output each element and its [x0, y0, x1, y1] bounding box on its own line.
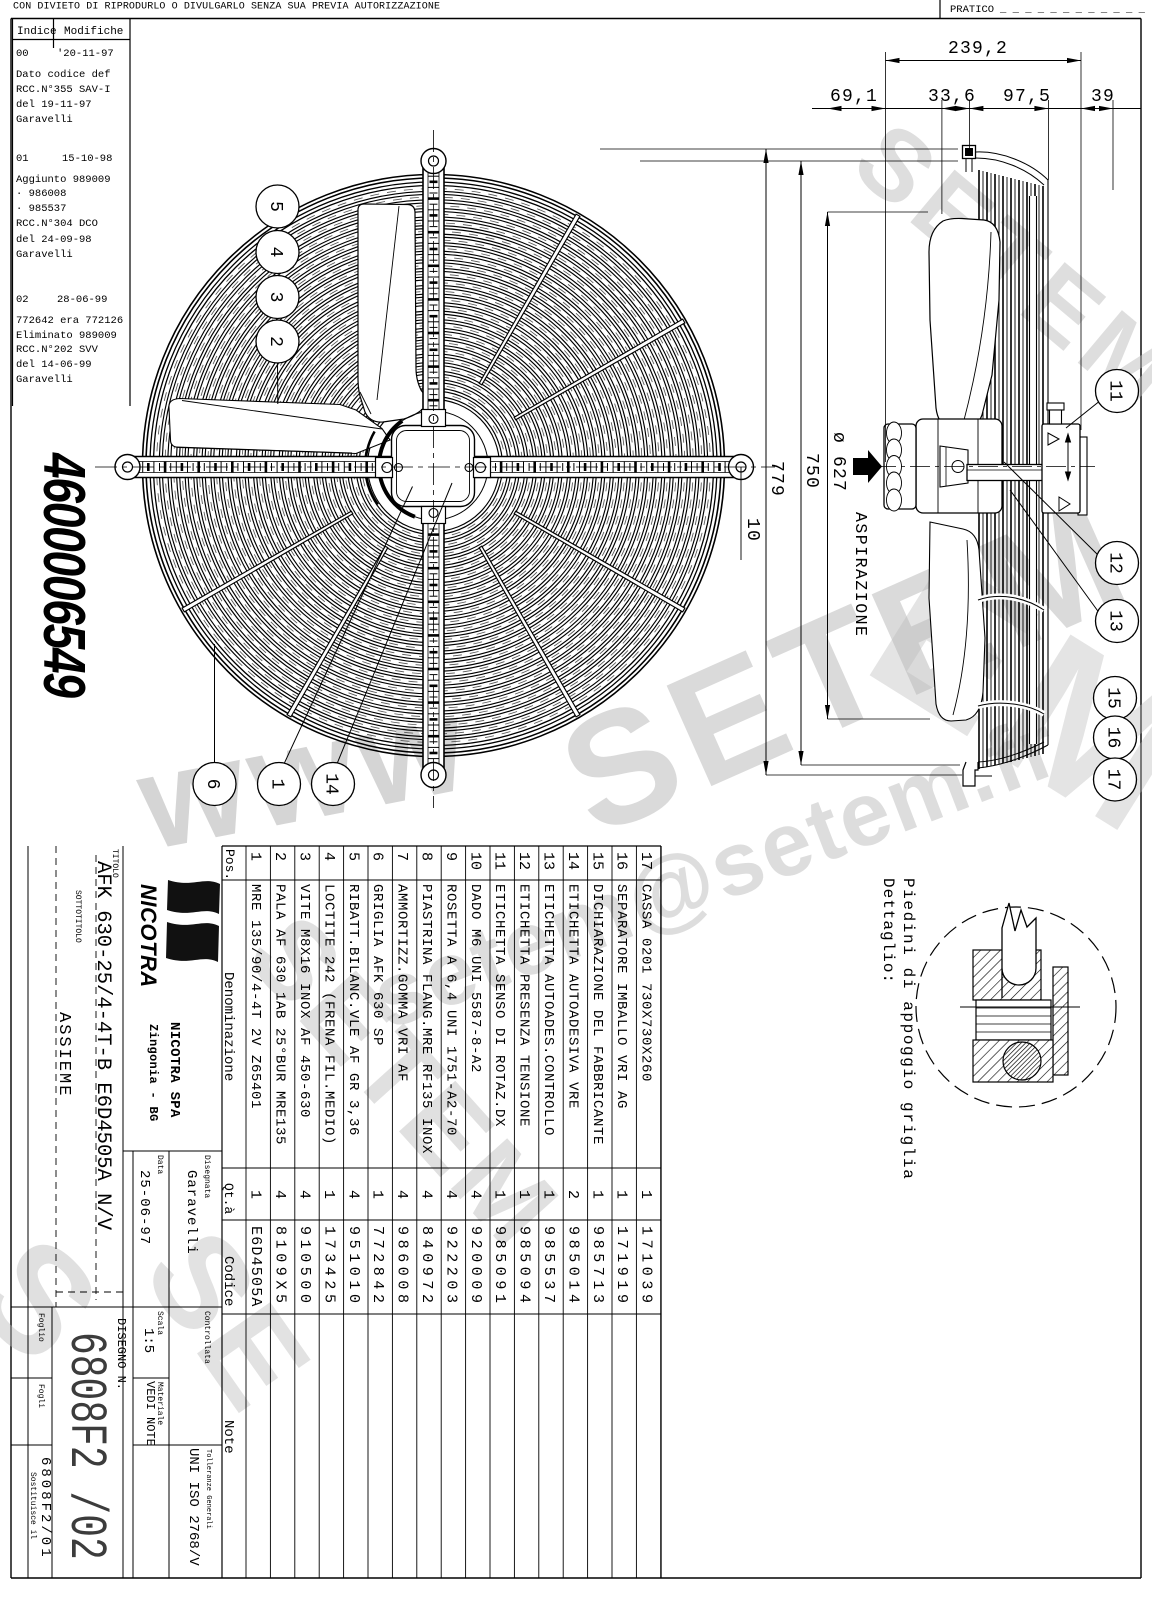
svg-text:Aggiunto 989009: Aggiunto 989009	[16, 174, 111, 186]
svg-text:DICHIARAZIONE DEL FABBRICANTE: DICHIARAZIONE DEL FABBRICANTE	[589, 884, 605, 1145]
svg-text:Garavelli: Garavelli	[16, 249, 73, 261]
svg-text:14: 14	[564, 852, 581, 870]
svg-text:1: 1	[540, 1190, 557, 1199]
svg-text:13: 13	[540, 852, 557, 870]
svg-text:33,6: 33,6	[928, 87, 976, 107]
svg-text:00: 00	[16, 48, 29, 60]
svg-text:4: 4	[265, 247, 285, 258]
svg-text:4: 4	[466, 1190, 483, 1199]
svg-text:Piedini di appoggio griglia: Piedini di appoggio griglia	[899, 878, 917, 1180]
svg-text:15: 15	[1103, 687, 1123, 709]
svg-text:985014: 985014	[564, 1226, 581, 1308]
svg-text:del 19-11-97: del 19-11-97	[16, 99, 92, 111]
svg-text:ASSIEME: ASSIEME	[54, 1012, 73, 1097]
svg-text:E6D4505A: E6D4505A	[247, 1226, 264, 1308]
svg-text:779: 779	[766, 461, 786, 497]
svg-text:772642 era 772126: 772642 era 772126	[16, 315, 123, 327]
svg-text:VEDI NOTE: VEDI NOTE	[143, 1381, 157, 1446]
svg-text:1: 1	[369, 1190, 386, 1199]
svg-text:AFK 630-25/4-4T-B E6D4505A N/V: AFK 630-25/4-4T-B E6D4505A N/V	[91, 861, 114, 1231]
svg-text:69,1: 69,1	[830, 87, 878, 107]
svg-text:Garavelli: Garavelli	[183, 1170, 199, 1255]
svg-text:Eliminato 989009: Eliminato 989009	[16, 330, 117, 342]
svg-text:6808F2/01: 6808F2/01	[37, 1457, 53, 1560]
svg-text:Zingonia - BG: Zingonia - BG	[146, 1024, 160, 1122]
svg-text:7: 7	[393, 852, 410, 861]
svg-text:15-10-98: 15-10-98	[62, 153, 112, 165]
svg-text:RIBATT.BILANC.VLE AF GR 3,36: RIBATT.BILANC.VLE AF GR 3,36	[345, 884, 361, 1136]
svg-text:CON DIVIETO DI RIPRODURLO O DI: CON DIVIETO DI RIPRODURLO O DIVULGARLO S…	[13, 2, 440, 13]
svg-text:del 14-06-99: del 14-06-99	[16, 359, 92, 371]
svg-text:Qt.à: Qt.à	[221, 1183, 236, 1214]
svg-text:MRE 135/90/4-4T 2V Z65401: MRE 135/90/4-4T 2V Z65401	[247, 884, 263, 1109]
svg-text:3: 3	[265, 292, 285, 303]
svg-text:1: 1	[247, 1190, 264, 1199]
svg-text:8: 8	[418, 852, 435, 861]
svg-text:10: 10	[742, 518, 762, 542]
svg-text:PIASTRINA FLANG.MRE RF135 INOX: PIASTRINA FLANG.MRE RF135 INOX	[418, 884, 434, 1154]
svg-text:4: 4	[296, 1190, 313, 1199]
svg-text:CASSA 0201 730X730X260: CASSA 0201 730X730X260	[638, 884, 654, 1082]
svg-text:Tolleranze Generali: Tolleranze Generali	[204, 1449, 212, 1529]
svg-text:NICOTRA: NICOTRA	[136, 884, 161, 988]
svg-text:985091: 985091	[491, 1226, 508, 1308]
svg-text:6808F2 /02: 6808F2 /02	[56, 1332, 115, 1560]
svg-text:6: 6	[202, 779, 222, 790]
svg-text:15: 15	[588, 852, 605, 870]
svg-text:986008: 986008	[394, 1226, 411, 1308]
svg-text:ROSETTA A 6,4 UNI 1751-A2-70: ROSETTA A 6,4 UNI 1751-A2-70	[442, 884, 458, 1136]
svg-text:4: 4	[418, 1190, 435, 1199]
svg-text:4: 4	[271, 1190, 288, 1199]
svg-text:ø 627: ø 627	[828, 432, 848, 492]
svg-text:ETICHETTA SENSO DI ROTAZ.DX: ETICHETTA SENSO DI ROTAZ.DX	[491, 884, 507, 1127]
svg-text:17: 17	[1103, 769, 1123, 791]
svg-text:11: 11	[491, 852, 508, 870]
svg-text:1: 1	[637, 1190, 654, 1199]
svg-text:PALA AF 630 1AB 25°BUR MRE135: PALA AF 630 1AB 25°BUR MRE135	[272, 884, 288, 1145]
svg-text:16: 16	[613, 852, 630, 870]
svg-text:951010: 951010	[345, 1226, 362, 1308]
svg-text:ETICHETTA AUTOADESIVA VRE: ETICHETTA AUTOADESIVA VRE	[564, 884, 580, 1109]
svg-text:RCC.N°355 SAV-I: RCC.N°355 SAV-I	[16, 84, 111, 96]
svg-text:13: 13	[1105, 610, 1125, 632]
svg-text:RCC.N°304 DCO: RCC.N°304 DCO	[16, 218, 98, 230]
svg-text:3: 3	[296, 852, 313, 861]
svg-text:8109X5: 8109X5	[272, 1226, 289, 1308]
svg-text:2: 2	[564, 1190, 581, 1199]
svg-text:Indice: Indice	[17, 26, 57, 38]
svg-text:12: 12	[515, 852, 532, 870]
svg-text:2: 2	[271, 852, 288, 861]
svg-text:11: 11	[1105, 380, 1125, 402]
svg-text:9: 9	[442, 852, 459, 861]
svg-text:14: 14	[321, 773, 341, 795]
svg-text:Modifiche: Modifiche	[64, 26, 123, 38]
svg-text:1: 1	[588, 1190, 605, 1199]
svg-text:1: 1	[515, 1190, 532, 1199]
svg-text:171919: 171919	[613, 1226, 630, 1308]
svg-text:1: 1	[320, 1190, 337, 1199]
svg-text:28-06-99: 28-06-99	[57, 294, 107, 306]
svg-text:922203: 922203	[442, 1226, 459, 1308]
svg-text:239,2: 239,2	[948, 39, 1008, 59]
svg-text:910500: 910500	[296, 1226, 313, 1308]
svg-text:772842: 772842	[369, 1226, 386, 1308]
svg-text:RCC.N°202 SVV: RCC.N°202 SVV	[16, 344, 99, 356]
svg-text:LOCTITE 242 (FRENA FIL.MEDIO): LOCTITE 242 (FRENA FIL.MEDIO)	[320, 884, 336, 1145]
svg-text:ETICHETTA AUTOADES.CONTROLLO: ETICHETTA AUTOADES.CONTROLLO	[540, 884, 556, 1136]
svg-text:Dettaglio:: Dettaglio:	[879, 878, 897, 984]
svg-text:Foglio: Foglio	[36, 1313, 45, 1342]
svg-text:_ _ _ _ _ _ _ _ _ _ _ _: _ _ _ _ _ _ _ _ _ _ _ _	[999, 4, 1146, 16]
svg-text:AMMORTIZZ.GOMMA VRI AF: AMMORTIZZ.GOMMA VRI AF	[394, 884, 410, 1082]
svg-text:Pos.: Pos.	[222, 849, 237, 880]
svg-text:39: 39	[1091, 87, 1115, 107]
svg-text:1: 1	[613, 1190, 630, 1199]
svg-text:1:5: 1:5	[140, 1328, 156, 1353]
svg-text:840972: 840972	[418, 1226, 435, 1308]
svg-text:985094: 985094	[516, 1226, 533, 1308]
svg-text:Dato codice def: Dato codice def	[16, 69, 111, 81]
svg-text:del 24-09-98: del 24-09-98	[16, 234, 92, 246]
svg-text:VITE M8X16 INOX AF 450-630: VITE M8X16 INOX AF 450-630	[296, 884, 312, 1118]
svg-text:Garavelli: Garavelli	[16, 374, 73, 386]
svg-text:1: 1	[267, 779, 287, 790]
svg-text:SEPARATORE IMBALLO VRI AG: SEPARATORE IMBALLO VRI AG	[613, 884, 629, 1109]
svg-text:02: 02	[16, 294, 29, 306]
svg-text:173425: 173425	[320, 1226, 337, 1308]
svg-text:1: 1	[491, 1190, 508, 1199]
svg-text:750: 750	[801, 453, 821, 489]
svg-text:ETICHETTA PRESENZA TENSIONE: ETICHETTA PRESENZA TENSIONE	[516, 884, 532, 1127]
svg-text:Controllata: Controllata	[202, 1311, 211, 1364]
svg-text:Sostituisce il: Sostituisce il	[28, 1472, 37, 1539]
svg-text:SOTTOTITOLO: SOTTOTITOLO	[73, 890, 82, 943]
svg-text:UNI ISO 2768/V: UNI ISO 2768/V	[185, 1448, 201, 1566]
svg-text:985713: 985713	[589, 1226, 606, 1308]
svg-text:5: 5	[344, 852, 361, 861]
svg-text:ASPIRAZIONE: ASPIRAZIONE	[851, 512, 870, 637]
svg-text:DADO M6 UNI 5587-8-A2: DADO M6 UNI 5587-8-A2	[467, 884, 483, 1073]
svg-text:Garavelli: Garavelli	[16, 114, 73, 126]
svg-text:4: 4	[393, 1190, 410, 1199]
svg-text:4: 4	[344, 1190, 361, 1199]
svg-text:'20-11-97: '20-11-97	[57, 48, 114, 60]
svg-text:PRATICO: PRATICO	[950, 4, 994, 16]
svg-text:920009: 920009	[467, 1226, 484, 1308]
svg-text:4: 4	[442, 1190, 459, 1199]
svg-text:171039: 171039	[638, 1226, 655, 1308]
svg-text:5: 5	[265, 201, 285, 212]
svg-text:4600006549: 4600006549	[31, 452, 97, 698]
svg-text:25-06-97: 25-06-97	[136, 1170, 152, 1245]
svg-text:97,5: 97,5	[1003, 87, 1051, 107]
svg-text:· 986008: · 986008	[16, 188, 66, 200]
svg-text:Disegnata: Disegnata	[202, 1155, 211, 1198]
svg-text:Fogli: Fogli	[36, 1384, 45, 1408]
svg-text:Data: Data	[155, 1155, 164, 1174]
svg-text:17: 17	[637, 852, 654, 870]
svg-text:985537: 985537	[540, 1226, 557, 1308]
svg-text:GRIGLIA AFK 630 SP: GRIGLIA AFK 630 SP	[369, 884, 385, 1046]
svg-text:10: 10	[466, 852, 483, 870]
svg-text:12: 12	[1105, 552, 1125, 574]
svg-text:· 985537: · 985537	[16, 203, 66, 215]
svg-text:6: 6	[369, 852, 386, 861]
svg-text:2: 2	[265, 336, 285, 347]
svg-text:16: 16	[1103, 727, 1123, 749]
svg-text:NICOTRA SPA: NICOTRA SPA	[166, 1022, 182, 1118]
svg-text:1: 1	[247, 852, 264, 861]
svg-text:01: 01	[16, 153, 29, 165]
svg-text:4: 4	[320, 852, 337, 861]
